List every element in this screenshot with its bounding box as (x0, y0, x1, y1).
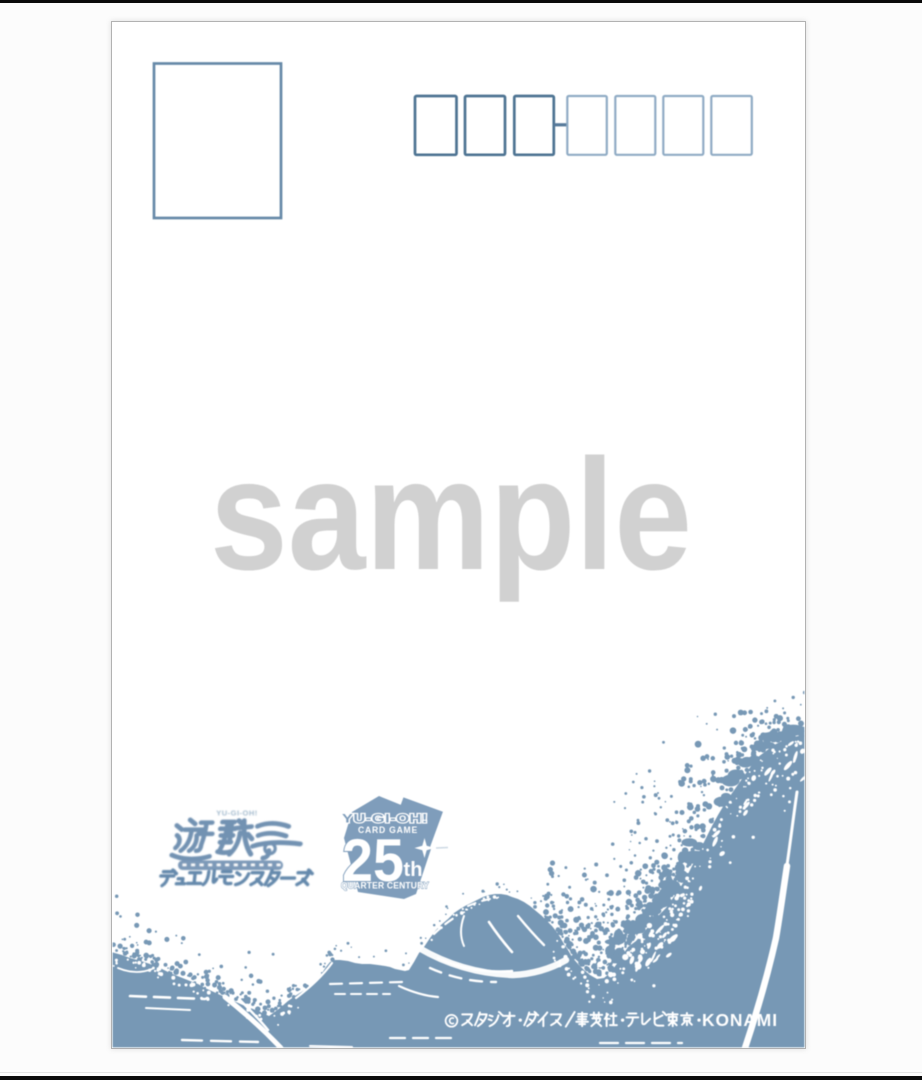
svg-text:YU-GI-OH!: YU-GI-OH! (342, 812, 428, 826)
svg-text:KONAMI: KONAMI (702, 1010, 778, 1030)
svg-text:QUARTER CENTURY: QUARTER CENTURY (341, 881, 429, 891)
svg-text:YU-GI-OH!: YU-GI-OH! (216, 809, 258, 818)
svg-text:th: th (404, 859, 423, 881)
svg-text:sample: sample (210, 427, 692, 603)
